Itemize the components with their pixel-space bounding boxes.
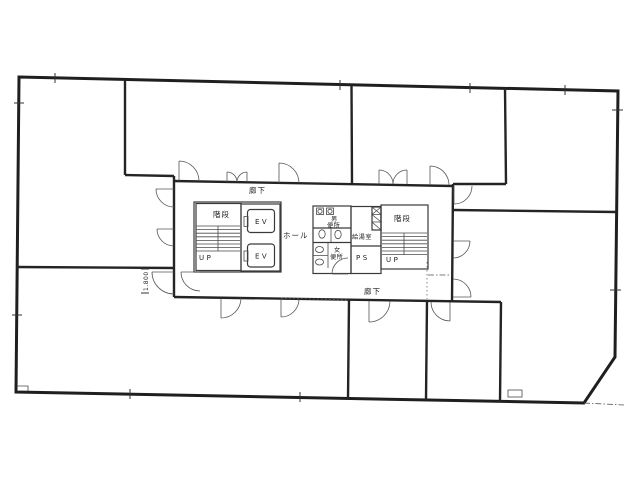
- wc-fixture-4: [316, 259, 324, 265]
- corridor-bottom-label: 廊下: [364, 286, 381, 296]
- wc-fixture-2: [335, 230, 341, 238]
- dimension-label: 1.800: [143, 271, 150, 291]
- interior-walls: [16, 79, 616, 402]
- dimension-annotation: 1.800: [141, 269, 150, 293]
- stair-treads-right: [382, 233, 427, 255]
- kitchenette-label: 給湯室: [352, 233, 372, 241]
- corridor-top-label: 廊下: [249, 185, 266, 195]
- elevator-1-label: EV: [255, 218, 269, 226]
- womens-toilet-label-2: 便所: [330, 253, 343, 261]
- stairs-right-label: 階段: [394, 213, 411, 223]
- floor-plan-scan: 1.800 廊下 廊下 階段 UP EV EV ホール 男 便所 女 便所 給湯…: [0, 0, 640, 480]
- bottom-edge-box: [508, 390, 522, 397]
- stair-treads-left: [196, 226, 240, 251]
- womens-toilet-label-1: 女: [334, 246, 341, 254]
- wc-fixture-1: [319, 230, 325, 238]
- window-ticks: [12, 73, 623, 402]
- pipe-space-label: PS: [356, 254, 370, 262]
- outer-walls: [16, 77, 618, 403]
- stairs-left-up-label: UP: [199, 254, 213, 262]
- elevator-block: [241, 204, 280, 271]
- hall-label: ホール: [283, 231, 309, 240]
- stairs-left-label: 階段: [213, 209, 230, 219]
- stairs-right-up-label: UP: [386, 256, 400, 264]
- mens-toilet-label-2: 便所: [327, 222, 340, 230]
- floor-plan-canvas: 1.800 廊下 廊下 階段 UP EV EV ホール 男 便所 女 便所 給湯…: [0, 0, 640, 480]
- elevator-2-label: EV: [255, 253, 269, 261]
- wc-fixture-3: [316, 247, 324, 253]
- bottom-left-notch: [17, 386, 28, 391]
